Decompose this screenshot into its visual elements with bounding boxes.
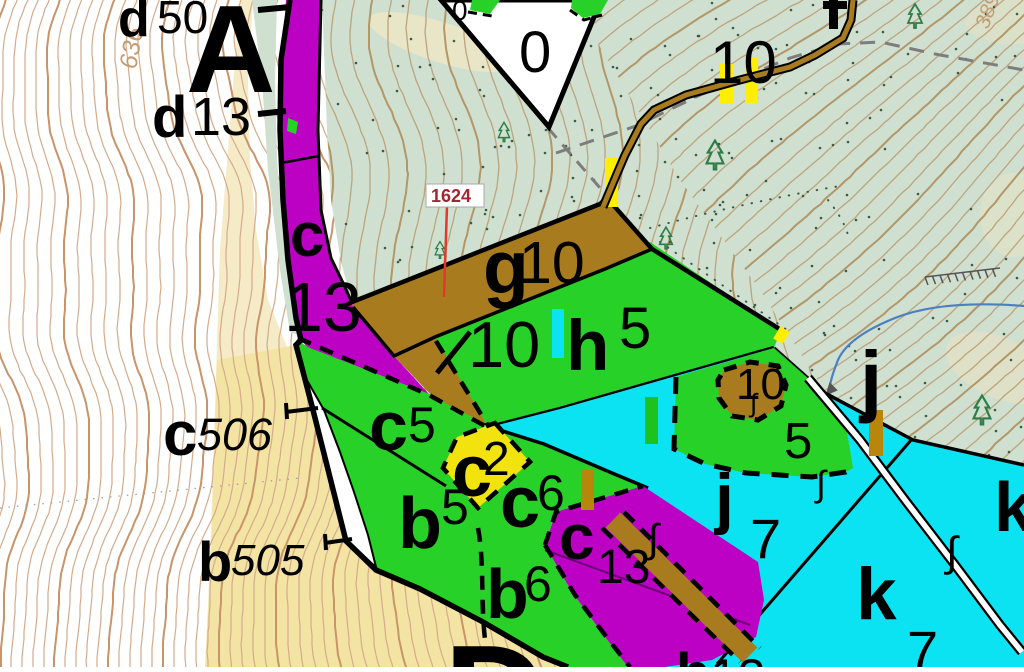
svg-text:b: b — [398, 484, 442, 564]
svg-text:b: b — [198, 530, 232, 593]
svg-text:D: D — [444, 616, 547, 667]
svg-text:d: d — [118, 0, 150, 48]
svg-text:j: j — [858, 335, 882, 424]
svg-text:10: 10 — [710, 29, 777, 96]
svg-text:506: 506 — [197, 409, 273, 460]
svg-text:c: c — [500, 463, 540, 543]
svg-text:13: 13 — [710, 649, 766, 667]
svg-text:c: c — [290, 201, 324, 270]
svg-text:c: c — [369, 387, 408, 465]
svg-text:13: 13 — [191, 87, 251, 147]
svg-text:c: c — [163, 400, 197, 469]
svg-text:d: d — [152, 85, 187, 150]
svg-text:c: c — [559, 501, 595, 573]
svg-text:7: 7 — [907, 619, 938, 667]
svg-text:505: 505 — [231, 536, 305, 585]
svg-text:5: 5 — [619, 296, 651, 361]
svg-text:13: 13 — [597, 541, 650, 594]
svg-text:7: 7 — [750, 507, 781, 570]
svg-text:5: 5 — [408, 397, 436, 453]
svg-text:10: 10 — [519, 230, 585, 296]
svg-text:6: 6 — [524, 556, 552, 612]
svg-text:10: 10 — [736, 360, 785, 409]
svg-text:h: h — [566, 307, 609, 386]
svg-text:5: 5 — [441, 479, 469, 535]
svg-text:0: 0 — [452, 0, 468, 26]
svg-text:b: b — [676, 641, 710, 667]
svg-text:13: 13 — [284, 268, 362, 346]
svg-text:k: k — [856, 554, 897, 635]
svg-text:k: k — [994, 468, 1024, 546]
svg-text:j: j — [713, 460, 734, 536]
svg-text:5: 5 — [784, 412, 812, 469]
svg-text:1624: 1624 — [431, 186, 471, 206]
svg-text:0: 0 — [519, 20, 551, 85]
svg-text:10: 10 — [468, 308, 540, 381]
